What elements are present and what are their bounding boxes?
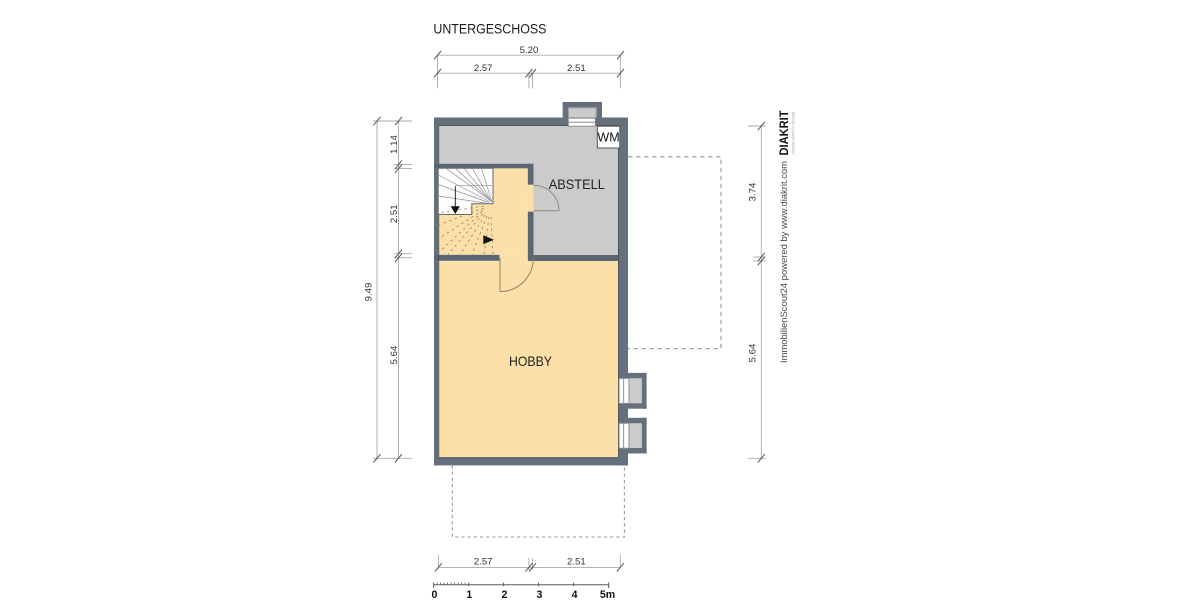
- svg-text:2.57: 2.57: [474, 557, 493, 568]
- svg-text:5.20: 5.20: [520, 45, 539, 56]
- svg-text:5.64: 5.64: [389, 345, 400, 364]
- svg-text:UNTERGESCHOSS: UNTERGESCHOSS: [433, 21, 546, 37]
- svg-text:1.14: 1.14: [389, 135, 400, 154]
- svg-text:2: 2: [502, 589, 508, 600]
- svg-text:0: 0: [432, 589, 438, 600]
- svg-text:2.51: 2.51: [389, 204, 400, 223]
- svg-text:3.74: 3.74: [748, 182, 759, 201]
- svg-text:2.51: 2.51: [567, 557, 586, 568]
- svg-text:HOBBY: HOBBY: [509, 353, 553, 369]
- svg-text:5m: 5m: [600, 589, 615, 600]
- svg-text:ABSTELL: ABSTELL: [549, 176, 605, 192]
- svg-text:2.57: 2.57: [474, 63, 493, 74]
- svg-text:1: 1: [466, 589, 472, 600]
- svg-text:DIAKRIT: DIAKRIT: [779, 111, 791, 156]
- svg-text:WM: WM: [597, 131, 619, 145]
- svg-text:interactive solutions for real: interactive solutions for real estate: [791, 112, 796, 154]
- svg-text:ImmobilienScout24 powered by w: ImmobilienScout24 powered by www.diakrit…: [779, 161, 789, 363]
- svg-text:3: 3: [537, 589, 543, 600]
- svg-text:2.51: 2.51: [567, 63, 586, 74]
- svg-text:4: 4: [572, 589, 578, 600]
- svg-text:9.49: 9.49: [364, 283, 375, 302]
- svg-text:5.64: 5.64: [748, 343, 759, 362]
